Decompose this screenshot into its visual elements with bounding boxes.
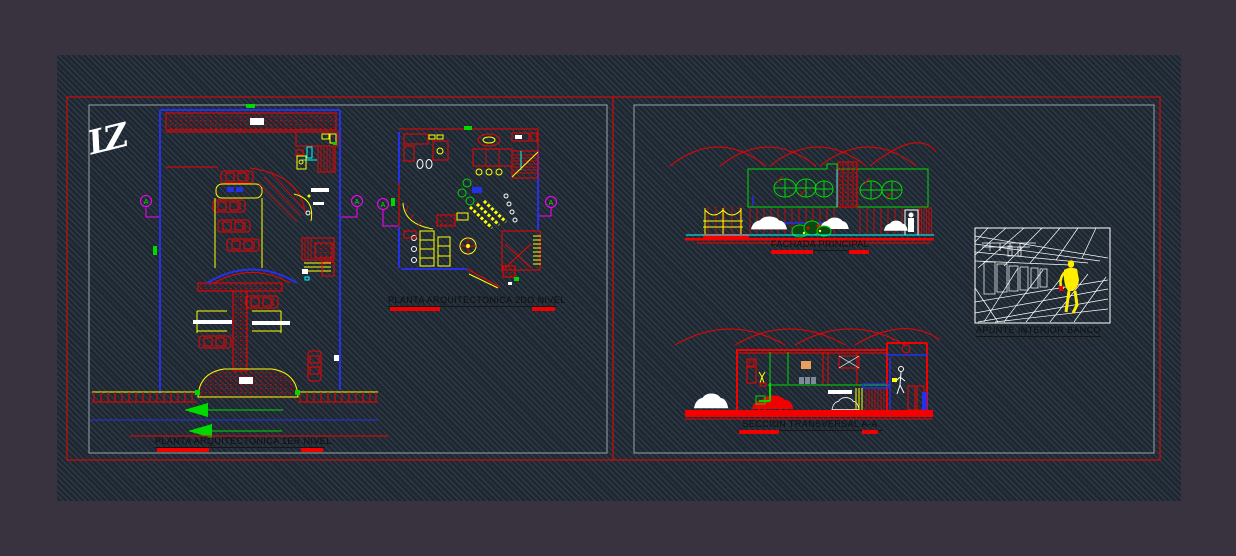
person-figure (1059, 260, 1079, 313)
plan1-title-bar-right (301, 448, 323, 452)
floor-plan-1 (153, 104, 340, 397)
svg-text:A: A (144, 199, 149, 206)
floor-plan-2 (391, 126, 541, 288)
elevation-fachada (670, 143, 936, 243)
fachada-title-bar-left (771, 250, 813, 254)
fachada-title-bar-right (849, 250, 869, 254)
svg-text:A: A (355, 199, 360, 206)
outer-red-frame (67, 97, 1160, 460)
plan2-title: PLANTA ARQUITECTONICA 2DO NIVEL (388, 295, 556, 307)
grid-bubble-plan1-left: A (141, 196, 160, 218)
grid-bubble-plan1-right: A (341, 196, 363, 218)
cad-sheet: A A (0, 0, 1236, 556)
plan2-title-bar-left (390, 307, 440, 311)
perspective-sketch (975, 228, 1110, 323)
svg-text:A: A (381, 202, 386, 209)
seccion-title-bar-right (862, 430, 878, 434)
section-aa (675, 329, 940, 419)
grid-bubble-plan2-right: A (539, 197, 557, 217)
plan2-title-bar-right (532, 307, 555, 311)
plan1-title-bar-left (157, 448, 209, 452)
svg-text:A: A (549, 200, 554, 207)
apunte-title: APUNTE INTERIOR BANCO (976, 325, 1101, 337)
plan1-title: PLANTA ARQUITECTONICA 1ER NIVEL (155, 436, 325, 448)
cad-drawing-layer: A A (0, 0, 1236, 556)
left-sheet-frame (89, 105, 607, 453)
seccion-title-bar-left (739, 430, 779, 434)
